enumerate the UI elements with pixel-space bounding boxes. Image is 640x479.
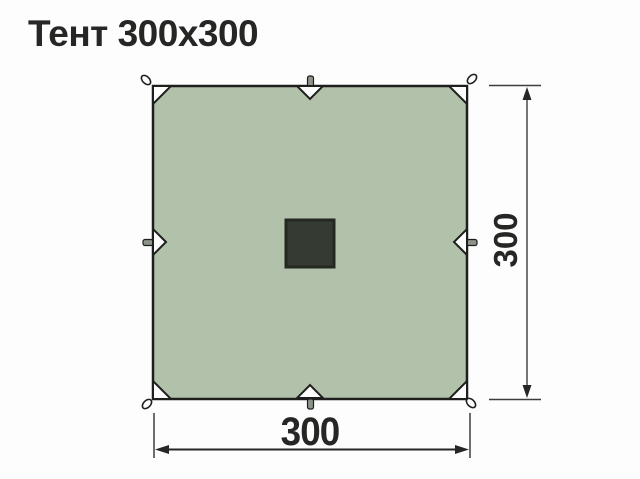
corner-loop-top-right [466, 73, 479, 86]
width-arrow-left-icon [155, 445, 169, 454]
width-arrow-right-icon [455, 445, 469, 454]
corner-loop-bottom-left [141, 398, 154, 411]
tent-diagram [0, 0, 640, 479]
edge-tab-right [467, 240, 477, 246]
corner-loop-top-left [140, 74, 153, 87]
product-diagram-page: Тент 300x300 [0, 0, 640, 479]
corner-loop-bottom-right [465, 397, 478, 410]
logo-patch [286, 220, 334, 267]
height-dimension-label: 300 [489, 180, 523, 300]
edge-tab-top [308, 76, 314, 86]
width-dimension-label: 300 [255, 412, 365, 452]
height-arrow-up-icon [523, 87, 532, 100]
height-arrow-down-icon [523, 385, 532, 398]
edge-tab-left [143, 240, 153, 246]
edge-tab-bottom [308, 399, 314, 409]
